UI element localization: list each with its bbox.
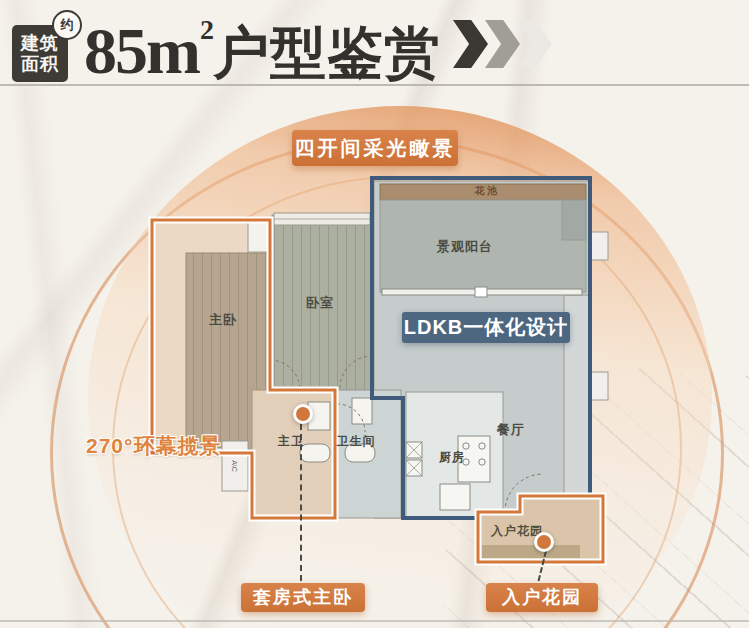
- callout-suite-badge: 套房式主卧: [241, 583, 365, 612]
- callout-left-slogan: 270°环幕揽景: [86, 432, 221, 460]
- label-balcony: 景观阳台: [437, 238, 493, 256]
- floor-plan: [0, 0, 749, 628]
- callout-dot-garden: [534, 532, 554, 552]
- label-ac-unit: A\C: [231, 460, 238, 472]
- label-kitchen: 厨房: [439, 449, 465, 466]
- label-flower-bed: 花池: [475, 184, 499, 198]
- label-master-bedroom: 主卧: [209, 311, 237, 329]
- callout-garden-badge: 入户花园: [486, 583, 598, 612]
- room-bath: [337, 390, 401, 518]
- label-bedroom: 卧室: [306, 294, 334, 312]
- callout-ldkb-badge: LDKB一体化设计: [402, 312, 570, 343]
- callout-dot-suite: [293, 404, 313, 424]
- bottom-divider: [0, 620, 749, 622]
- label-bath: 卫生间: [337, 433, 376, 450]
- label-dining: 餐厅: [497, 421, 525, 439]
- leader-line-suite: [300, 424, 302, 581]
- callout-top-badge: 四开间采光瞰景: [292, 130, 458, 166]
- poster-page: 建筑 面积 约 85m2户型鉴赏: [0, 0, 749, 628]
